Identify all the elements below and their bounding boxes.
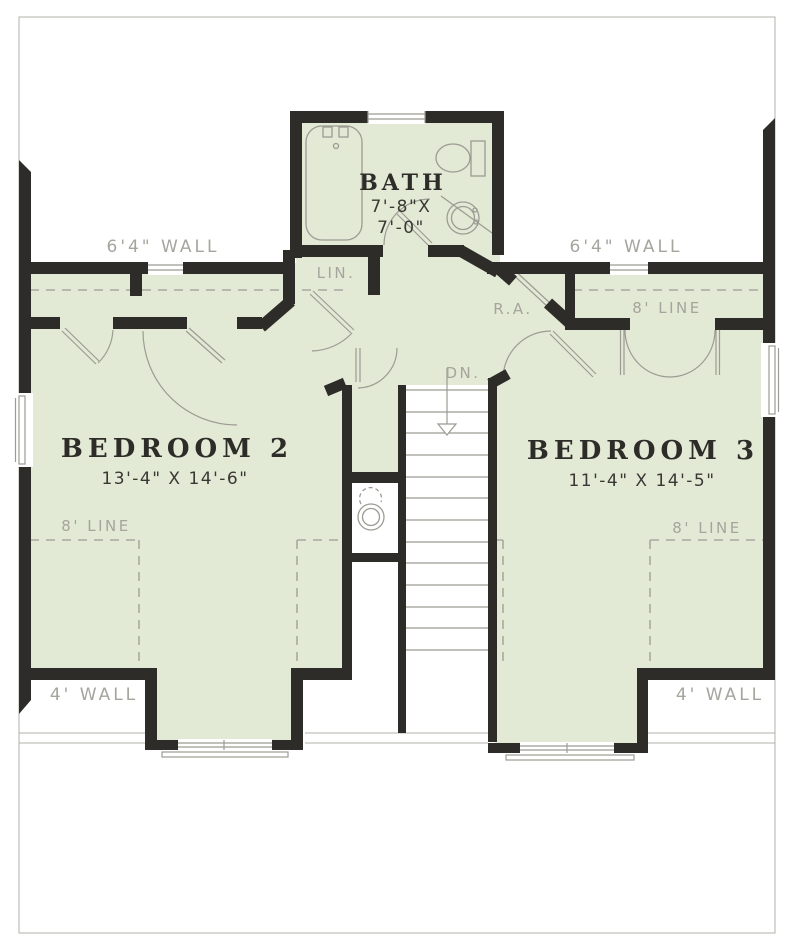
hall-strip bbox=[350, 560, 398, 760]
window-knee-right bbox=[610, 261, 648, 275]
wall-label-4-left: 4' WALL bbox=[50, 685, 138, 705]
return-air-label: R.A. bbox=[493, 300, 532, 318]
utility-nook bbox=[348, 478, 398, 560]
floor-plan-svg: BATH 7'-8"X 7'-0" BEDROOM 2 13'-4" X 14'… bbox=[0, 0, 797, 950]
window-bath bbox=[368, 110, 425, 124]
step-area bbox=[303, 678, 350, 760]
floor-area-dormer-right bbox=[495, 660, 641, 748]
floor-area-dormer-left bbox=[152, 660, 294, 745]
bath-dim-1: 7'-8"X bbox=[371, 197, 432, 217]
line8-label-bottom-right: 8' LINE bbox=[672, 519, 741, 537]
wall-label-64-left: 6'4" WALL bbox=[107, 237, 220, 257]
line8-label-top-right: 8' LINE bbox=[632, 299, 701, 317]
floor-plan-page: BATH 7'-8"X 7'-0" BEDROOM 2 13'-4" X 14'… bbox=[0, 0, 797, 950]
wall-label-4-right: 4' WALL bbox=[676, 685, 764, 705]
line8-label-bottom-left: 8' LINE bbox=[61, 517, 130, 535]
stairs-down-label: DN. bbox=[445, 364, 480, 382]
bedroom2-dim: 13'-4" X 14'-6" bbox=[101, 469, 248, 489]
bedroom3-dim: 11'-4" X 14'-5" bbox=[568, 471, 715, 491]
window-bed2-left bbox=[16, 393, 34, 467]
linen-label: LIN. bbox=[317, 264, 356, 282]
room-label-bath: BATH bbox=[359, 170, 447, 196]
room-label-bedroom3: BEDROOM 3 bbox=[527, 436, 759, 466]
window-bed3-right bbox=[761, 343, 779, 417]
stair-shaft bbox=[406, 385, 488, 755]
bath-dim-2: 7'-0" bbox=[377, 218, 425, 238]
window-knee-left bbox=[148, 261, 183, 275]
window-dormer-left bbox=[162, 739, 288, 757]
room-label-bedroom2: BEDROOM 2 bbox=[61, 434, 293, 464]
wall-label-64-right: 6'4" WALL bbox=[570, 237, 683, 257]
